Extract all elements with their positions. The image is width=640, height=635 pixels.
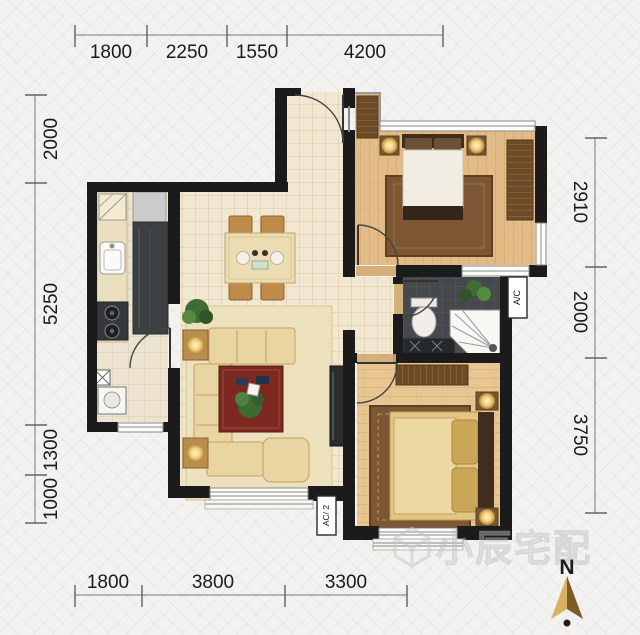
wardrobe xyxy=(357,96,378,138)
lamp xyxy=(479,509,495,525)
ac-unit-bath: A/C xyxy=(508,277,527,318)
corridor-opening-floor xyxy=(343,277,355,330)
floor-lamp xyxy=(187,336,205,354)
dimension-right: 2910 2000 3750 xyxy=(569,138,607,513)
sofa-chaise xyxy=(263,438,309,482)
ac-unit-living-label: AC/ 2 xyxy=(321,505,331,527)
dim-right-0: 2910 xyxy=(569,181,590,223)
ac-unit-bath-label: A/C xyxy=(512,290,522,306)
tv-console xyxy=(330,366,344,446)
dimension-top: 1800 2250 1550 4200 xyxy=(75,25,443,63)
kitchen-cabinet xyxy=(99,194,126,220)
entry-hall-floor xyxy=(287,92,343,192)
compass-base-dot xyxy=(564,620,571,627)
dim-left-1: 5250 xyxy=(41,283,62,325)
dimension-left: 2000 5250 1300 1000 xyxy=(25,95,62,523)
toilet xyxy=(411,298,437,337)
living-room xyxy=(182,299,344,500)
dim-top-1: 2250 xyxy=(166,42,208,63)
corridor-floor xyxy=(355,277,393,354)
kitchen-sink xyxy=(100,242,125,274)
dim-top-3: 4200 xyxy=(344,42,386,63)
sofa-top xyxy=(209,328,295,364)
dim-top-0: 1800 xyxy=(90,42,132,63)
dim-bottom-2: 3300 xyxy=(325,572,367,593)
living-window xyxy=(210,488,308,500)
lamp xyxy=(382,138,398,154)
ac-unit-living: AC/ 2 xyxy=(317,496,336,535)
dining-chair xyxy=(229,216,252,233)
dining-chair xyxy=(261,216,284,233)
master-bed xyxy=(390,412,494,520)
lamp xyxy=(479,393,495,409)
dim-bottom-0: 1800 xyxy=(87,572,129,593)
dimension-bottom: 1800 3800 3300 xyxy=(75,572,407,607)
dim-left-2: 1300 xyxy=(41,429,62,471)
compass-needle-dark xyxy=(567,576,583,619)
vanity xyxy=(403,338,455,354)
dining-chair xyxy=(261,283,284,300)
floor-lamp xyxy=(187,444,205,462)
dining-table xyxy=(225,233,295,283)
stove xyxy=(97,302,128,340)
wardrobe xyxy=(507,140,533,220)
dim-right-1: 2000 xyxy=(569,291,590,333)
dim-left-0: 2000 xyxy=(41,118,62,160)
dim-left-3: 1000 xyxy=(41,478,62,520)
lamp xyxy=(469,138,485,154)
dining-chair xyxy=(229,283,252,300)
dim-right-2: 3750 xyxy=(569,414,590,456)
floor-plan: AC/ 2 A/C 1800 2250 1550 4200 1800 3800 … xyxy=(0,0,640,635)
dim-top-2: 1550 xyxy=(236,42,278,63)
coffee-table xyxy=(219,366,283,432)
sofa-bottom xyxy=(207,442,263,476)
dim-bottom-1: 3800 xyxy=(192,572,234,593)
bed xyxy=(402,134,464,220)
wardrobe xyxy=(396,365,468,385)
compass-needle-light xyxy=(551,576,567,619)
kitchen-dark-counter xyxy=(133,222,168,334)
compass-north-label: N xyxy=(559,556,574,579)
fridge xyxy=(133,192,166,222)
